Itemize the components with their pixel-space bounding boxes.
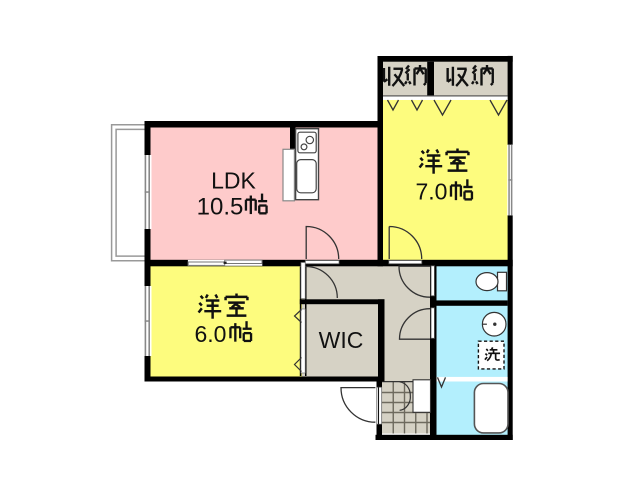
svg-text:LDK: LDK — [211, 168, 256, 194]
svg-text:WIC: WIC — [319, 327, 364, 353]
svg-text:6.0: 6.0 — [195, 321, 227, 347]
svg-text:7.0: 7.0 — [416, 179, 448, 205]
svg-text:10.5: 10.5 — [197, 194, 244, 221]
